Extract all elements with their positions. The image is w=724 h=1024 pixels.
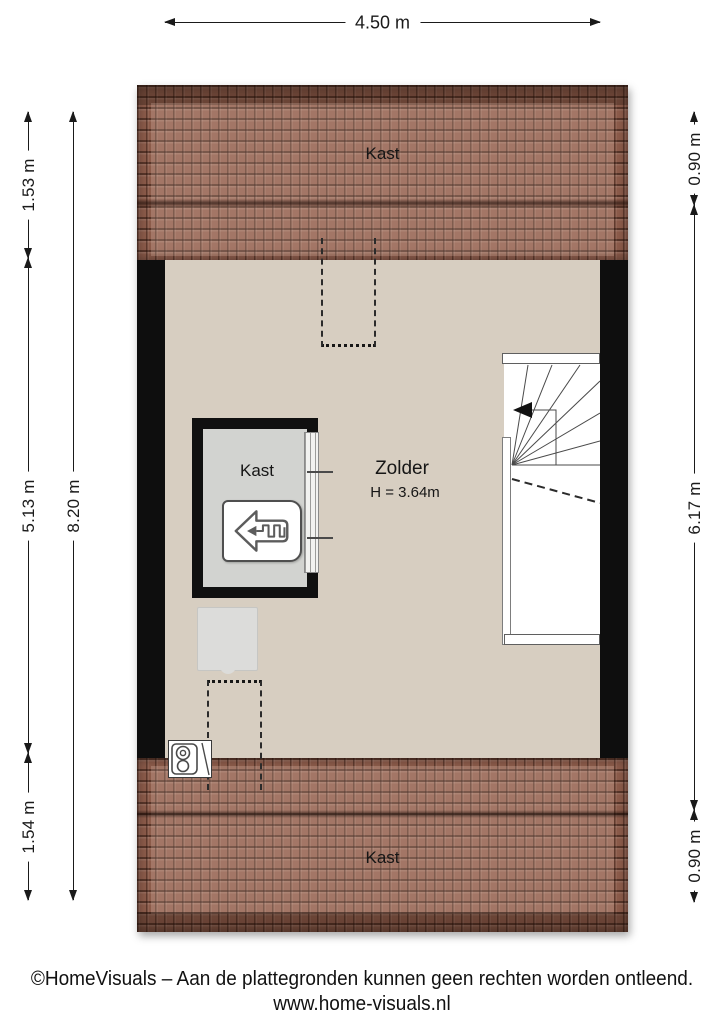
boiler-icon bbox=[168, 740, 212, 778]
room-name-label: Zolder bbox=[352, 458, 452, 480]
closet-louvre-door bbox=[304, 432, 319, 573]
roof-top-ridge-line bbox=[137, 199, 628, 207]
stairs-direction-arrow-icon bbox=[513, 402, 532, 418]
footer: ©HomeVisuals – Aan de plattegronden kunn… bbox=[0, 967, 724, 1017]
dimension-right-segment-2: 6.17 m bbox=[694, 205, 695, 810]
dimension-left-segment-3: 1.54 m bbox=[28, 753, 29, 900]
closet-top-label: Kast bbox=[137, 144, 628, 164]
dimension-right-segment-2-label: 6.17 m bbox=[685, 473, 705, 542]
boiler-glyph bbox=[169, 741, 211, 777]
closet-door-tick-lower bbox=[307, 537, 333, 539]
ventilation-unit-glyph bbox=[224, 502, 300, 560]
staircase-treads bbox=[504, 353, 600, 645]
wall-left bbox=[137, 260, 165, 758]
roof-top-closet-area bbox=[151, 103, 614, 256]
dimension-right-segment-3: 0.90 m bbox=[694, 810, 695, 902]
floorplan-drawing: Kast Kast bbox=[137, 85, 628, 932]
dimension-left-segment-3-label: 1.54 m bbox=[19, 792, 39, 861]
footer-website-link: www.home-visuals.nl bbox=[18, 992, 706, 1017]
floorplan-page: 4.50 m 1.53 m 5.13 m 1.54 m 8.20 m 0.90 … bbox=[0, 0, 724, 1024]
dimension-left-segment-1: 1.53 m bbox=[28, 112, 29, 258]
dimension-top-width: 4.50 m bbox=[165, 22, 600, 23]
room-height-label: H = 3.64m bbox=[345, 484, 465, 501]
cabinet-furniture bbox=[197, 607, 258, 671]
dimension-left-segment-2-label: 5.13 m bbox=[19, 471, 39, 540]
ventilation-unit-icon bbox=[222, 500, 302, 562]
dimension-right-segment-3-label: 0.90 m bbox=[685, 821, 705, 890]
closet-bottom-label: Kast bbox=[137, 848, 628, 868]
roof-bottom-ridge-line bbox=[137, 810, 628, 818]
roof-bottom-edge-shading bbox=[137, 912, 628, 932]
dimension-top-width-label: 4.50 m bbox=[345, 13, 420, 34]
closet-door-tick-upper bbox=[307, 471, 333, 473]
dimension-right-segment-1: 0.90 m bbox=[694, 112, 695, 205]
roof-top-edge-shading bbox=[137, 85, 628, 105]
footer-copyright-text: ©HomeVisuals – Aan de plattegronden kunn… bbox=[18, 967, 706, 992]
closet-label: Kast bbox=[205, 461, 309, 481]
dimension-left-total: 8.20 m bbox=[73, 112, 74, 900]
dimension-left-segment-2: 5.13 m bbox=[28, 258, 29, 753]
dashed-dormer-outline-top bbox=[321, 238, 376, 347]
dashed-outline-bottom bbox=[207, 680, 262, 790]
roof-band-top: Kast bbox=[137, 85, 628, 260]
dimension-left-total-label: 8.20 m bbox=[64, 471, 84, 540]
dimension-left-segment-1-label: 1.53 m bbox=[19, 150, 39, 219]
dimension-right-segment-1-label: 0.90 m bbox=[685, 124, 705, 193]
wall-right bbox=[600, 260, 628, 758]
